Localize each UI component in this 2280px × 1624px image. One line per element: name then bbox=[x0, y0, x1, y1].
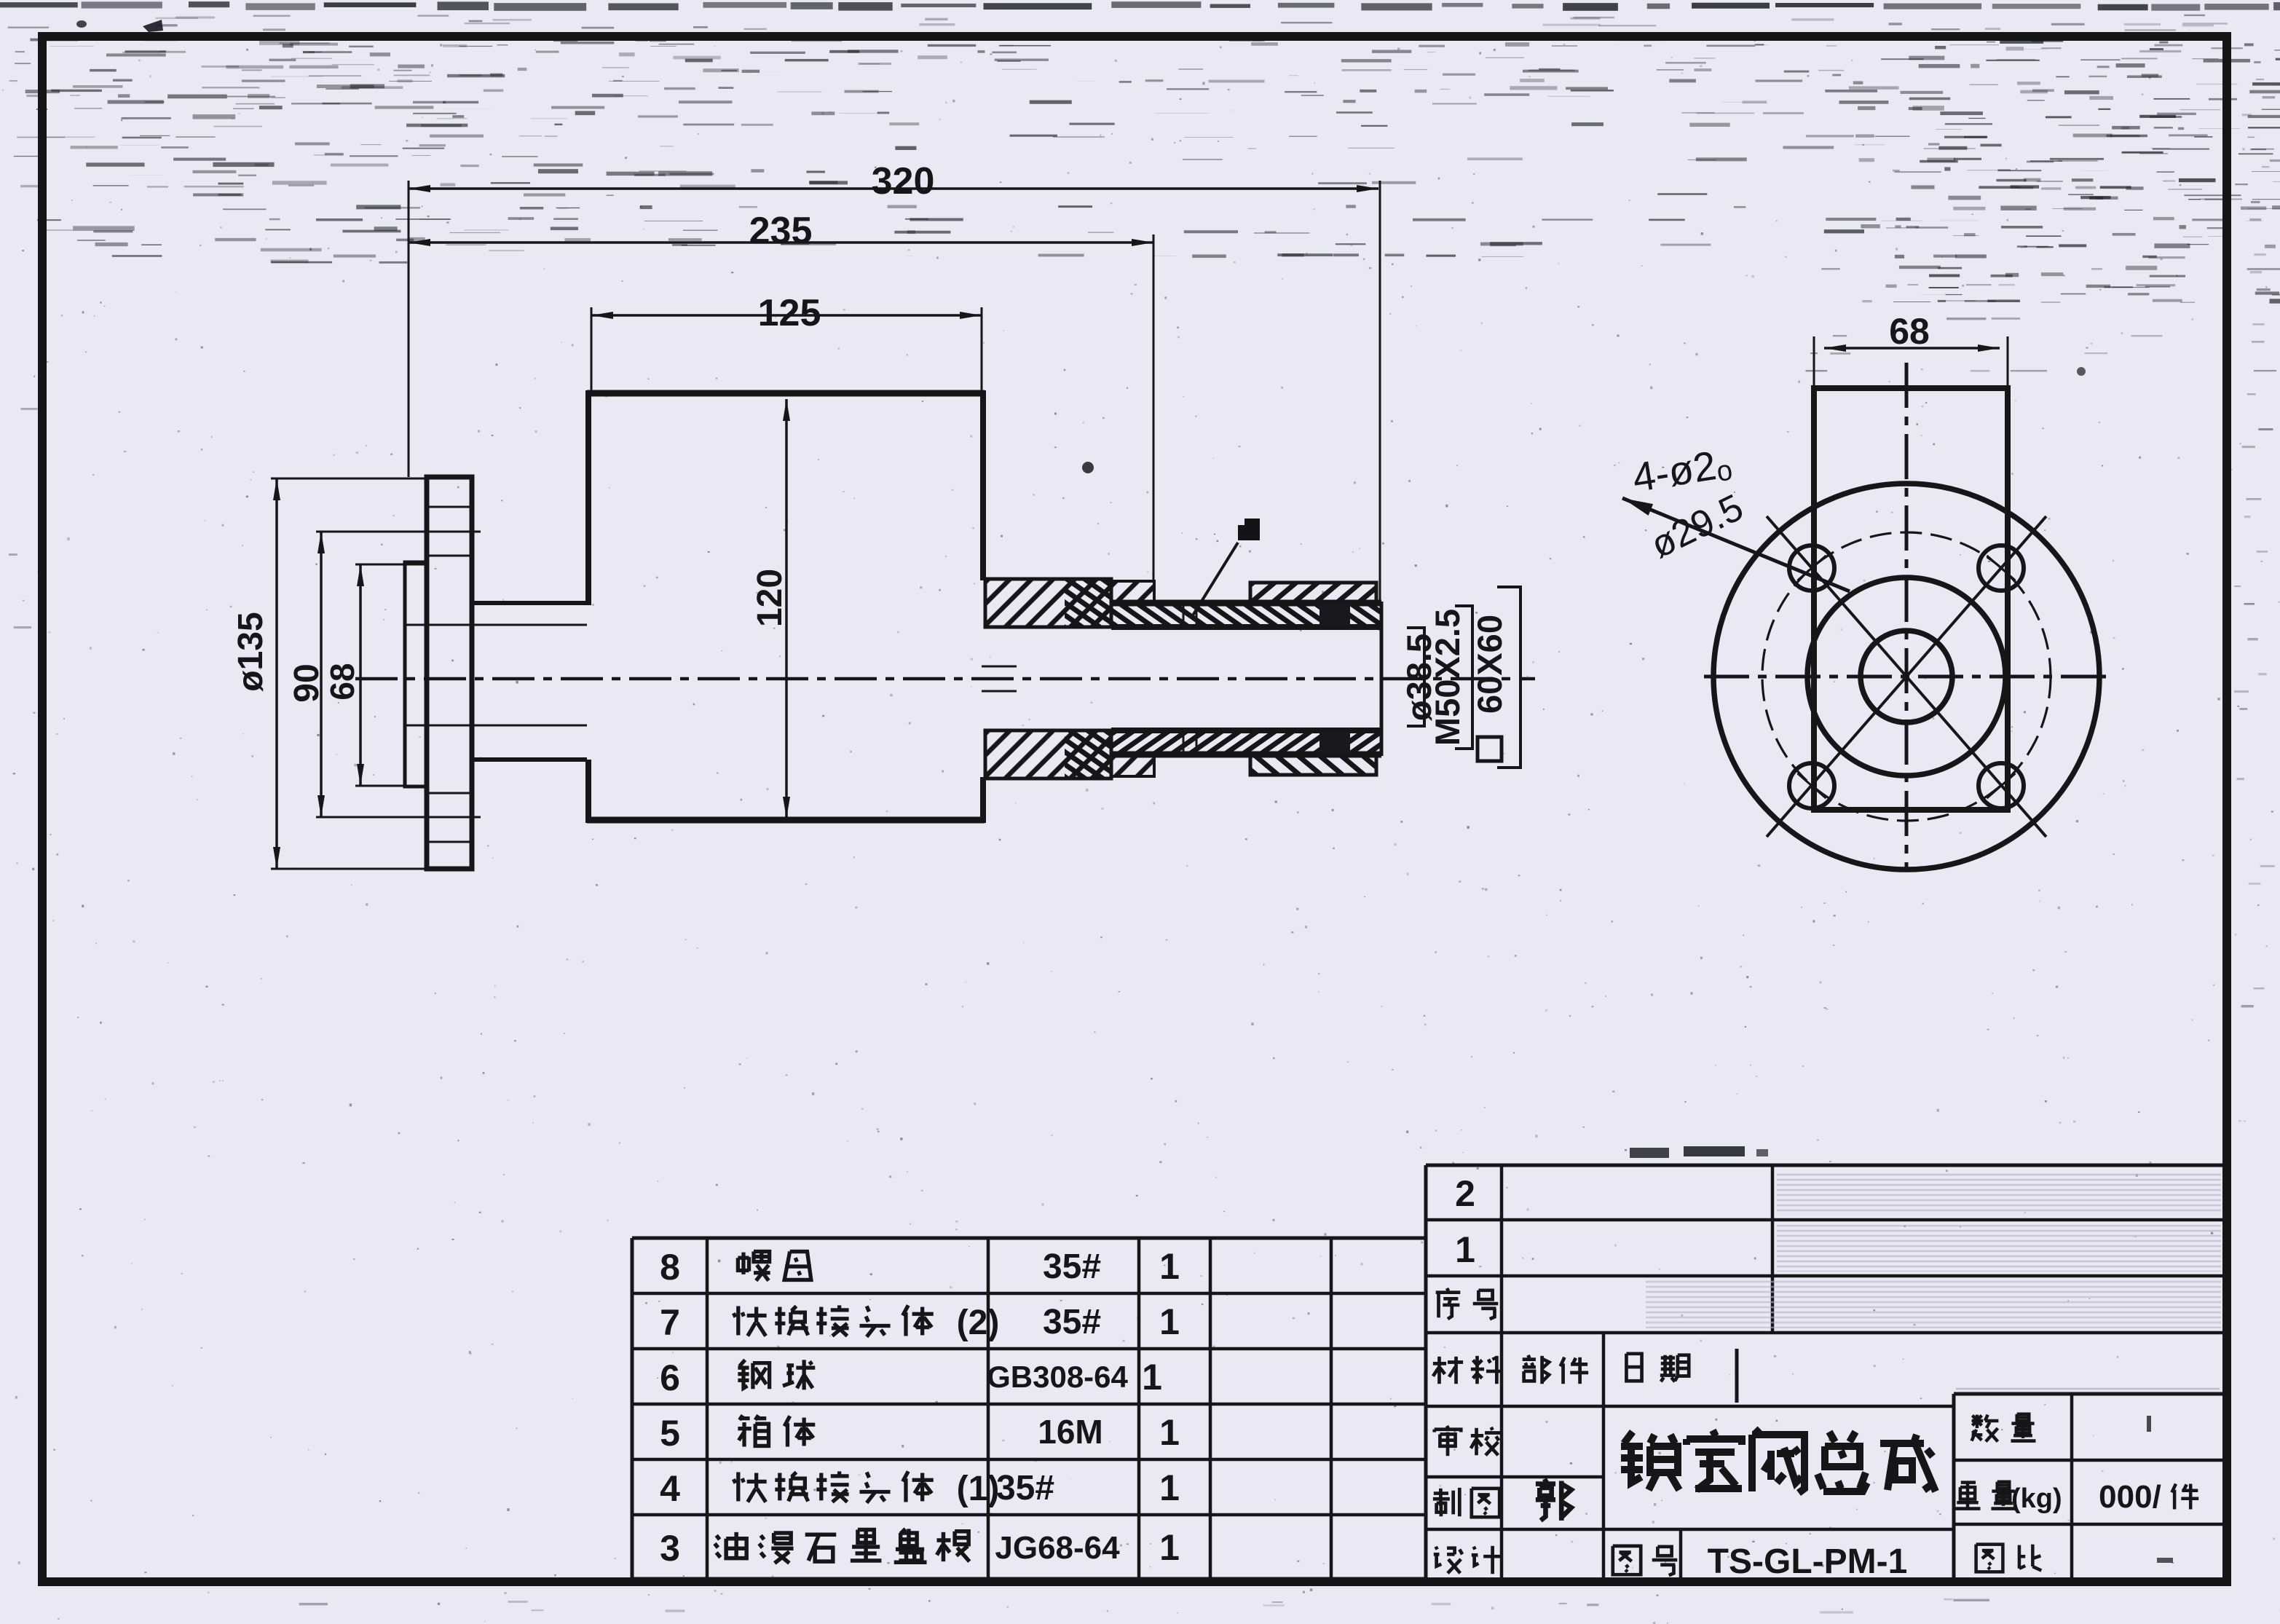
svg-text:ø29.5: ø29.5 bbox=[1644, 486, 1750, 567]
svg-text:320: 320 bbox=[872, 160, 935, 202]
svg-text:125: 125 bbox=[758, 292, 821, 334]
svg-text:1: 1 bbox=[1455, 1229, 1475, 1270]
svg-text:6: 6 bbox=[660, 1357, 680, 1398]
svg-text:(2): (2) bbox=[957, 1304, 1000, 1342]
svg-text:7: 7 bbox=[660, 1302, 680, 1343]
svg-text:JG68-64: JG68-64 bbox=[995, 1530, 1120, 1566]
svg-text:(kg): (kg) bbox=[2011, 1483, 2062, 1514]
svg-text:3: 3 bbox=[660, 1528, 680, 1569]
svg-text:35#: 35# bbox=[1043, 1303, 1101, 1341]
svg-text:1: 1 bbox=[1159, 1467, 1180, 1508]
svg-text:1: 1 bbox=[1159, 1301, 1180, 1342]
svg-text:35#: 35# bbox=[1043, 1247, 1101, 1286]
svg-text:68: 68 bbox=[323, 663, 361, 700]
svg-text:235: 235 bbox=[749, 210, 813, 252]
svg-text:4-ø2ₒ: 4-ø2ₒ bbox=[1629, 440, 1734, 501]
svg-text:000/: 000/ bbox=[2099, 1479, 2161, 1515]
svg-text:90: 90 bbox=[288, 663, 326, 702]
svg-text:68: 68 bbox=[1889, 311, 1930, 352]
svg-text:GB308-64: GB308-64 bbox=[987, 1360, 1128, 1394]
svg-text:M50X2.5: M50X2.5 bbox=[1428, 609, 1467, 746]
svg-text:(1): (1) bbox=[957, 1470, 1000, 1508]
svg-text:ø135: ø135 bbox=[232, 612, 270, 691]
svg-text:2: 2 bbox=[1455, 1173, 1475, 1214]
svg-text:5: 5 bbox=[660, 1413, 680, 1454]
svg-text:1: 1 bbox=[1159, 1246, 1180, 1287]
svg-text:35#: 35# bbox=[996, 1469, 1054, 1507]
svg-text:1: 1 bbox=[1142, 1357, 1162, 1398]
svg-text:1: 1 bbox=[1159, 1527, 1180, 1568]
svg-text:16M: 16M bbox=[1038, 1413, 1102, 1451]
svg-text:60X60: 60X60 bbox=[1470, 615, 1509, 714]
svg-text:1: 1 bbox=[1159, 1412, 1180, 1453]
svg-text:TS-GL-PM-1: TS-GL-PM-1 bbox=[1708, 1542, 1908, 1581]
svg-text:120: 120 bbox=[751, 569, 789, 627]
svg-text:4: 4 bbox=[660, 1468, 680, 1509]
svg-text:8: 8 bbox=[660, 1247, 680, 1288]
